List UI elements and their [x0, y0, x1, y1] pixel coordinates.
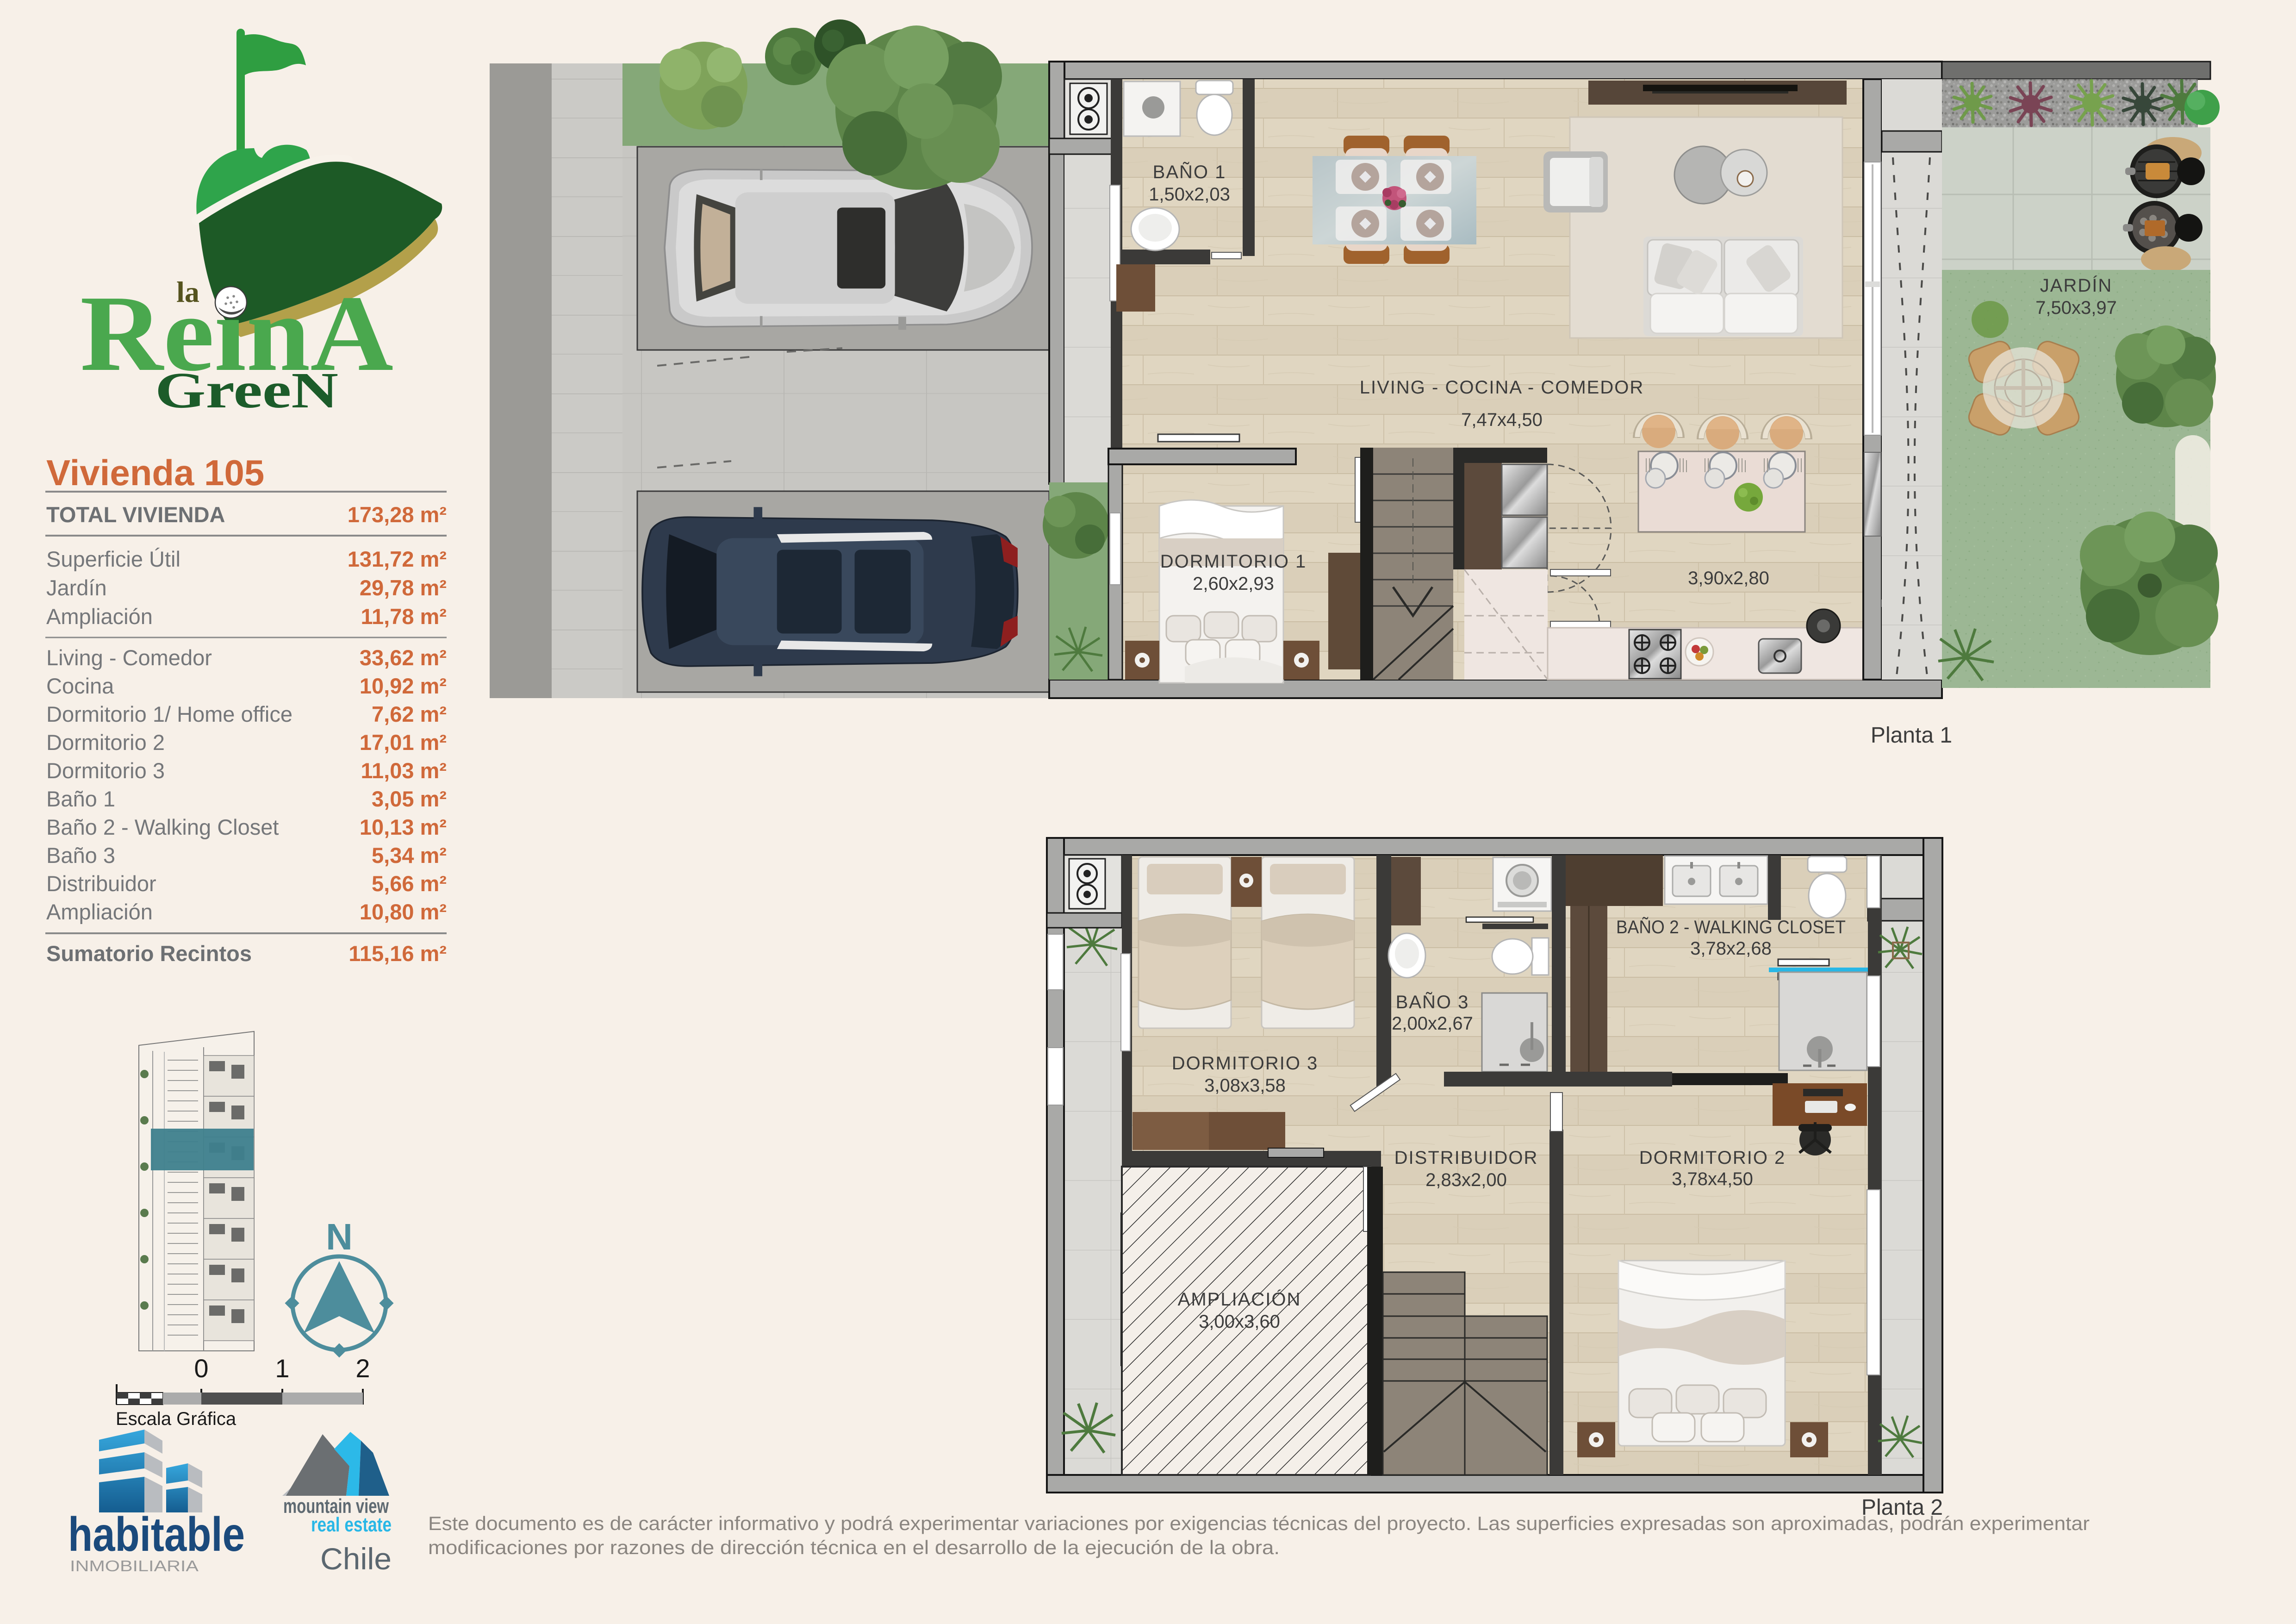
- svg-text:Planta 1: Planta 1: [1871, 723, 1952, 748]
- svg-text:2,60x2,93: 2,60x2,93: [1193, 574, 1274, 594]
- svg-text:GreeN: GreeN: [155, 362, 338, 418]
- svg-text:0: 0: [194, 1354, 208, 1383]
- svg-text:1,50x2,03: 1,50x2,03: [1149, 184, 1230, 205]
- svg-text:Distribuidor: Distribuidor: [46, 871, 156, 896]
- svg-text:DISTRIBUIDOR: DISTRIBUIDOR: [1394, 1148, 1538, 1168]
- svg-text:29,78 m²: 29,78 m²: [360, 575, 447, 600]
- svg-text:real estate: real estate: [311, 1513, 392, 1536]
- svg-text:7,50x3,97: 7,50x3,97: [2035, 298, 2117, 318]
- svg-text:Jardín: Jardín: [46, 575, 107, 600]
- svg-text:10,92 m²: 10,92 m²: [360, 674, 447, 698]
- svg-text:3,78x2,68: 3,78x2,68: [1690, 938, 1772, 959]
- svg-text:Vivienda 105: Vivienda 105: [46, 452, 264, 493]
- svg-text:5,34 m²: 5,34 m²: [372, 843, 447, 868]
- svg-text:Baño 1: Baño 1: [46, 787, 115, 811]
- svg-text:11,78 m²: 11,78 m²: [361, 604, 447, 629]
- svg-text:3,05 m²: 3,05 m²: [372, 787, 447, 811]
- svg-text:Sumatorio Recintos: Sumatorio Recintos: [46, 941, 252, 966]
- svg-text:3,00x3,60: 3,00x3,60: [1199, 1312, 1280, 1332]
- svg-text:115,16 m²: 115,16 m²: [348, 941, 447, 966]
- svg-text:DORMITORIO 2: DORMITORIO 2: [1639, 1148, 1786, 1168]
- svg-text:BAÑO 1: BAÑO 1: [1153, 162, 1226, 182]
- svg-text:3,90x2,80: 3,90x2,80: [1688, 568, 1769, 588]
- svg-text:Living - Comedor: Living - Comedor: [46, 645, 212, 670]
- svg-text:7,62 m²: 7,62 m²: [372, 702, 447, 726]
- svg-text:Escala Gráfica: Escala Gráfica: [116, 1409, 236, 1429]
- svg-text:Chile: Chile: [320, 1542, 392, 1576]
- svg-text:LIVING - COCINA - COMEDOR: LIVING - COCINA - COMEDOR: [1360, 377, 1644, 398]
- svg-text:Este documento es de carácter: Este documento es de carácter informativ…: [428, 1512, 2090, 1534]
- svg-text:N: N: [326, 1216, 353, 1257]
- svg-text:Dormitorio 1/ Home office: Dormitorio 1/ Home office: [46, 702, 292, 726]
- svg-text:173,28 m²: 173,28 m²: [348, 502, 447, 527]
- svg-text:10,13 m²: 10,13 m²: [360, 815, 447, 839]
- svg-text:3,08x3,58: 3,08x3,58: [1204, 1075, 1286, 1096]
- svg-text:Ampliación: Ampliación: [46, 604, 153, 629]
- svg-text:2,83x2,00: 2,83x2,00: [1425, 1170, 1507, 1190]
- svg-text:11,03 m²: 11,03 m²: [361, 758, 447, 783]
- svg-text:Dormitorio 3: Dormitorio 3: [46, 758, 165, 783]
- svg-text:Dormitorio 2: Dormitorio 2: [46, 730, 165, 755]
- svg-text:INMOBILIARIA: INMOBILIARIA: [70, 1557, 199, 1574]
- svg-text:habitable: habitable: [68, 1508, 245, 1562]
- svg-text:10,80 m²: 10,80 m²: [360, 899, 447, 924]
- svg-text:Cocina: Cocina: [46, 674, 114, 698]
- svg-text:JARDÍN: JARDÍN: [2040, 275, 2112, 296]
- svg-text:DORMITORIO 3: DORMITORIO 3: [1172, 1053, 1319, 1074]
- svg-text:BAÑO 3: BAÑO 3: [1396, 992, 1469, 1012]
- svg-text:131,72 m²: 131,72 m²: [348, 547, 447, 571]
- svg-text:AMPLIACIÓN: AMPLIACIÓN: [1178, 1289, 1301, 1310]
- svg-text:5,66 m²: 5,66 m²: [372, 871, 447, 896]
- svg-text:Baño 3: Baño 3: [46, 843, 115, 868]
- svg-text:TOTAL VIVIENDA: TOTAL VIVIENDA: [46, 502, 225, 527]
- svg-text:17,01 m²: 17,01 m²: [360, 730, 447, 755]
- svg-text:Superficie Útil: Superficie Útil: [46, 547, 180, 571]
- svg-text:3,78x4,50: 3,78x4,50: [1672, 1169, 1753, 1189]
- svg-text:1: 1: [275, 1354, 289, 1383]
- svg-text:DORMITORIO 1: DORMITORIO 1: [1160, 551, 1307, 572]
- svg-text:modificaciones por razones de: modificaciones por razones de dirección …: [428, 1537, 1280, 1558]
- svg-text:BAÑO 2 - WALKING CLOSET: BAÑO 2 - WALKING CLOSET: [1616, 917, 1846, 937]
- svg-text:7,47x4,50: 7,47x4,50: [1461, 410, 1543, 430]
- svg-text:Baño 2 - Walking Closet: Baño 2 - Walking Closet: [46, 815, 279, 839]
- svg-text:Ampliación: Ampliación: [46, 899, 153, 924]
- svg-text:2: 2: [355, 1354, 370, 1383]
- svg-text:2,00x2,67: 2,00x2,67: [1392, 1013, 1473, 1034]
- svg-text:33,62 m²: 33,62 m²: [360, 645, 447, 670]
